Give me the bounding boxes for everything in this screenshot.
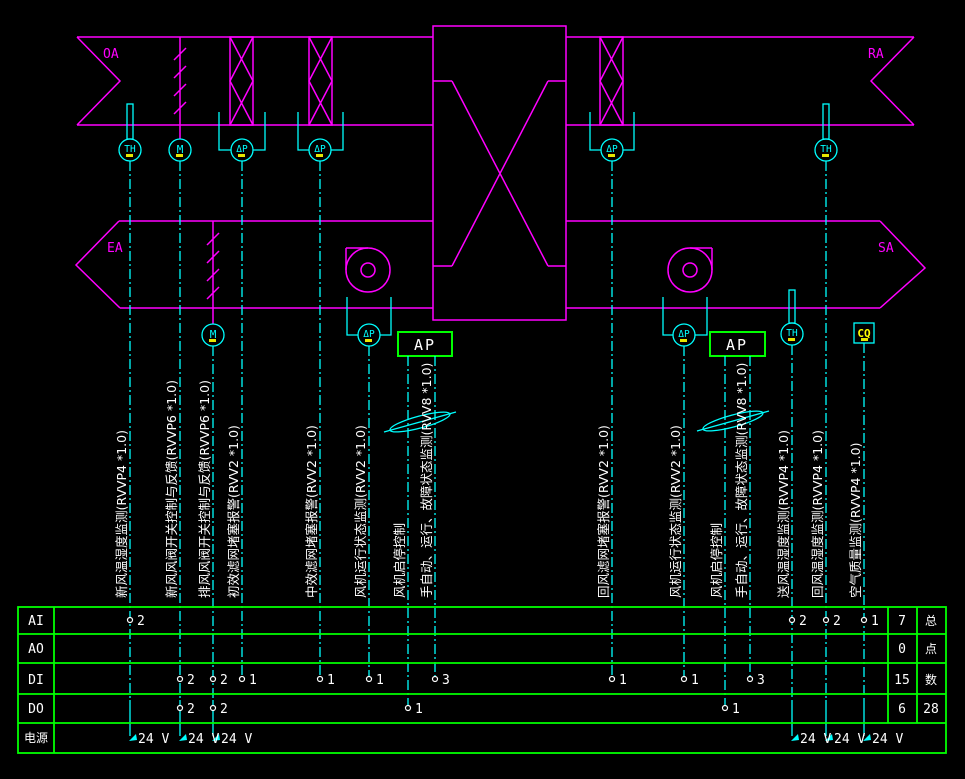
oa-damper [174, 37, 186, 139]
ra-label: RA [868, 47, 884, 62]
supply-fan-controller: AP [710, 332, 765, 356]
row-label-di: DI [28, 673, 44, 688]
di-count: 1 [327, 673, 335, 688]
cable-label-13: 送风温湿度监测(RVVP4 *1.0) [776, 430, 791, 598]
power-value: 24 V [221, 732, 252, 747]
th-icon: TH [786, 328, 798, 339]
supply-fan [668, 248, 712, 292]
mid-filter [309, 37, 332, 125]
power-value: 24 V [834, 732, 865, 747]
cable-label-7: 风机启停控制 [392, 523, 407, 598]
dp-icon: ΔP [314, 144, 326, 155]
cable-label-14: 回风温湿度监测(RVVP4 *1.0) [810, 430, 825, 598]
ea-label: EA [107, 241, 123, 256]
ap-box-label: AP [726, 336, 748, 354]
dp-icon: ΔP [678, 329, 690, 340]
pre-filter [230, 37, 253, 125]
ai-count: 2 [799, 614, 807, 629]
di-count: 1 [249, 673, 257, 688]
sa-th-probe [789, 290, 795, 323]
di-count: 1 [619, 673, 627, 688]
ai-count: 1 [871, 614, 879, 629]
ap-box-label: AP [414, 336, 436, 354]
di-count: 1 [376, 673, 384, 688]
do-count: 2 [220, 702, 228, 717]
di-count: 2 [187, 673, 195, 688]
dp-icon: ΔP [606, 144, 618, 155]
dp-icon: ΔP [236, 144, 248, 155]
top-duct-outline [77, 37, 914, 125]
di-count: 1 [691, 673, 699, 688]
cable-label-3: 排风风阀开关控制与反馈(RVVP6 *1.0) [197, 380, 212, 598]
di-count: 3 [442, 673, 450, 688]
totals-header-char: 点 [925, 642, 937, 656]
cable-label-12: 手自动、运行、故障状态监测(RVV8 *1.0) [734, 363, 749, 598]
do-count: 2 [187, 702, 195, 717]
exhaust-fan [346, 248, 390, 292]
total-ai: 7 [898, 614, 906, 629]
cable-labels: 新风温湿度监测(RVVP4 *1.0) 新风风阀开关控制与反馈(RVVP6 *1… [114, 363, 863, 598]
row-label-do: DO [28, 702, 44, 717]
total-ao: 0 [898, 642, 906, 657]
ai-count: 2 [137, 614, 145, 629]
total-do: 6 [898, 702, 906, 717]
exhaust-fan-controller: AP [398, 332, 452, 356]
cable-label-8: 手自动、运行、故障状态监测(RVV8 *1.0) [419, 363, 434, 598]
power-value: 24 V [800, 732, 831, 747]
do-count: 1 [415, 702, 423, 717]
power-line-tails [130, 700, 864, 736]
th-icon: TH [124, 144, 136, 155]
cable-label-5: 中效滤网堵塞报警(RVV2 *1.0) [304, 425, 319, 598]
oa-label: OA [103, 47, 119, 62]
cable-label-15: 空气质量监测(RVVP4 *1.0) [848, 443, 863, 598]
bottom-duct-outline [76, 221, 925, 308]
di-count: 2 [220, 673, 228, 688]
cable-label-1: 新风温湿度监测(RVVP4 *1.0) [114, 430, 129, 598]
grand-total: 28 [923, 702, 939, 717]
power-value: 24 V [872, 732, 903, 747]
cable-label-6: 风机运行状态监测(RVV2 *1.0) [353, 425, 368, 598]
cable-label-2: 新风风阀开关控制与反馈(RVVP6 *1.0) [164, 380, 179, 598]
th-icon: TH [820, 144, 832, 155]
cable-label-11: 风机启停控制 [709, 523, 724, 598]
cable-label-9: 回风滤网堵塞报警(RVV2 *1.0) [596, 425, 611, 598]
sa-label: SA [878, 241, 894, 256]
hvac-control-diagram: OA RA EA SA TH M ΔP ΔP ΔP TH M ΔP ΔP TH … [0, 0, 965, 779]
cable-label-4: 初效滤网堵塞报警(RVV2 *1.0) [226, 425, 241, 598]
io-point-markers [128, 618, 867, 711]
di-count: 3 [757, 673, 765, 688]
cable-label-10: 风机运行状态监测(RVV2 *1.0) [668, 425, 683, 598]
sensor-tag-marks [126, 154, 868, 342]
totals-header-char: 数 [925, 672, 937, 687]
ai-count: 2 [833, 614, 841, 629]
row-label-ao: AO [28, 642, 44, 657]
do-count: 1 [732, 702, 740, 717]
power-value: 24 V [138, 732, 169, 747]
row-label-ai: AI [28, 614, 44, 629]
oa-th-probe [127, 104, 133, 139]
heat-exchanger [433, 26, 566, 320]
dp-icon: ΔP [363, 329, 375, 340]
totals-header-char: 总 [925, 614, 937, 628]
total-di: 15 [894, 673, 910, 688]
ra-th-probe [823, 104, 829, 139]
cable-bundle-marker [697, 407, 769, 435]
power-value: 24 V [188, 732, 219, 747]
row-label-power: 电源 [24, 731, 48, 745]
return-filter [600, 37, 623, 125]
